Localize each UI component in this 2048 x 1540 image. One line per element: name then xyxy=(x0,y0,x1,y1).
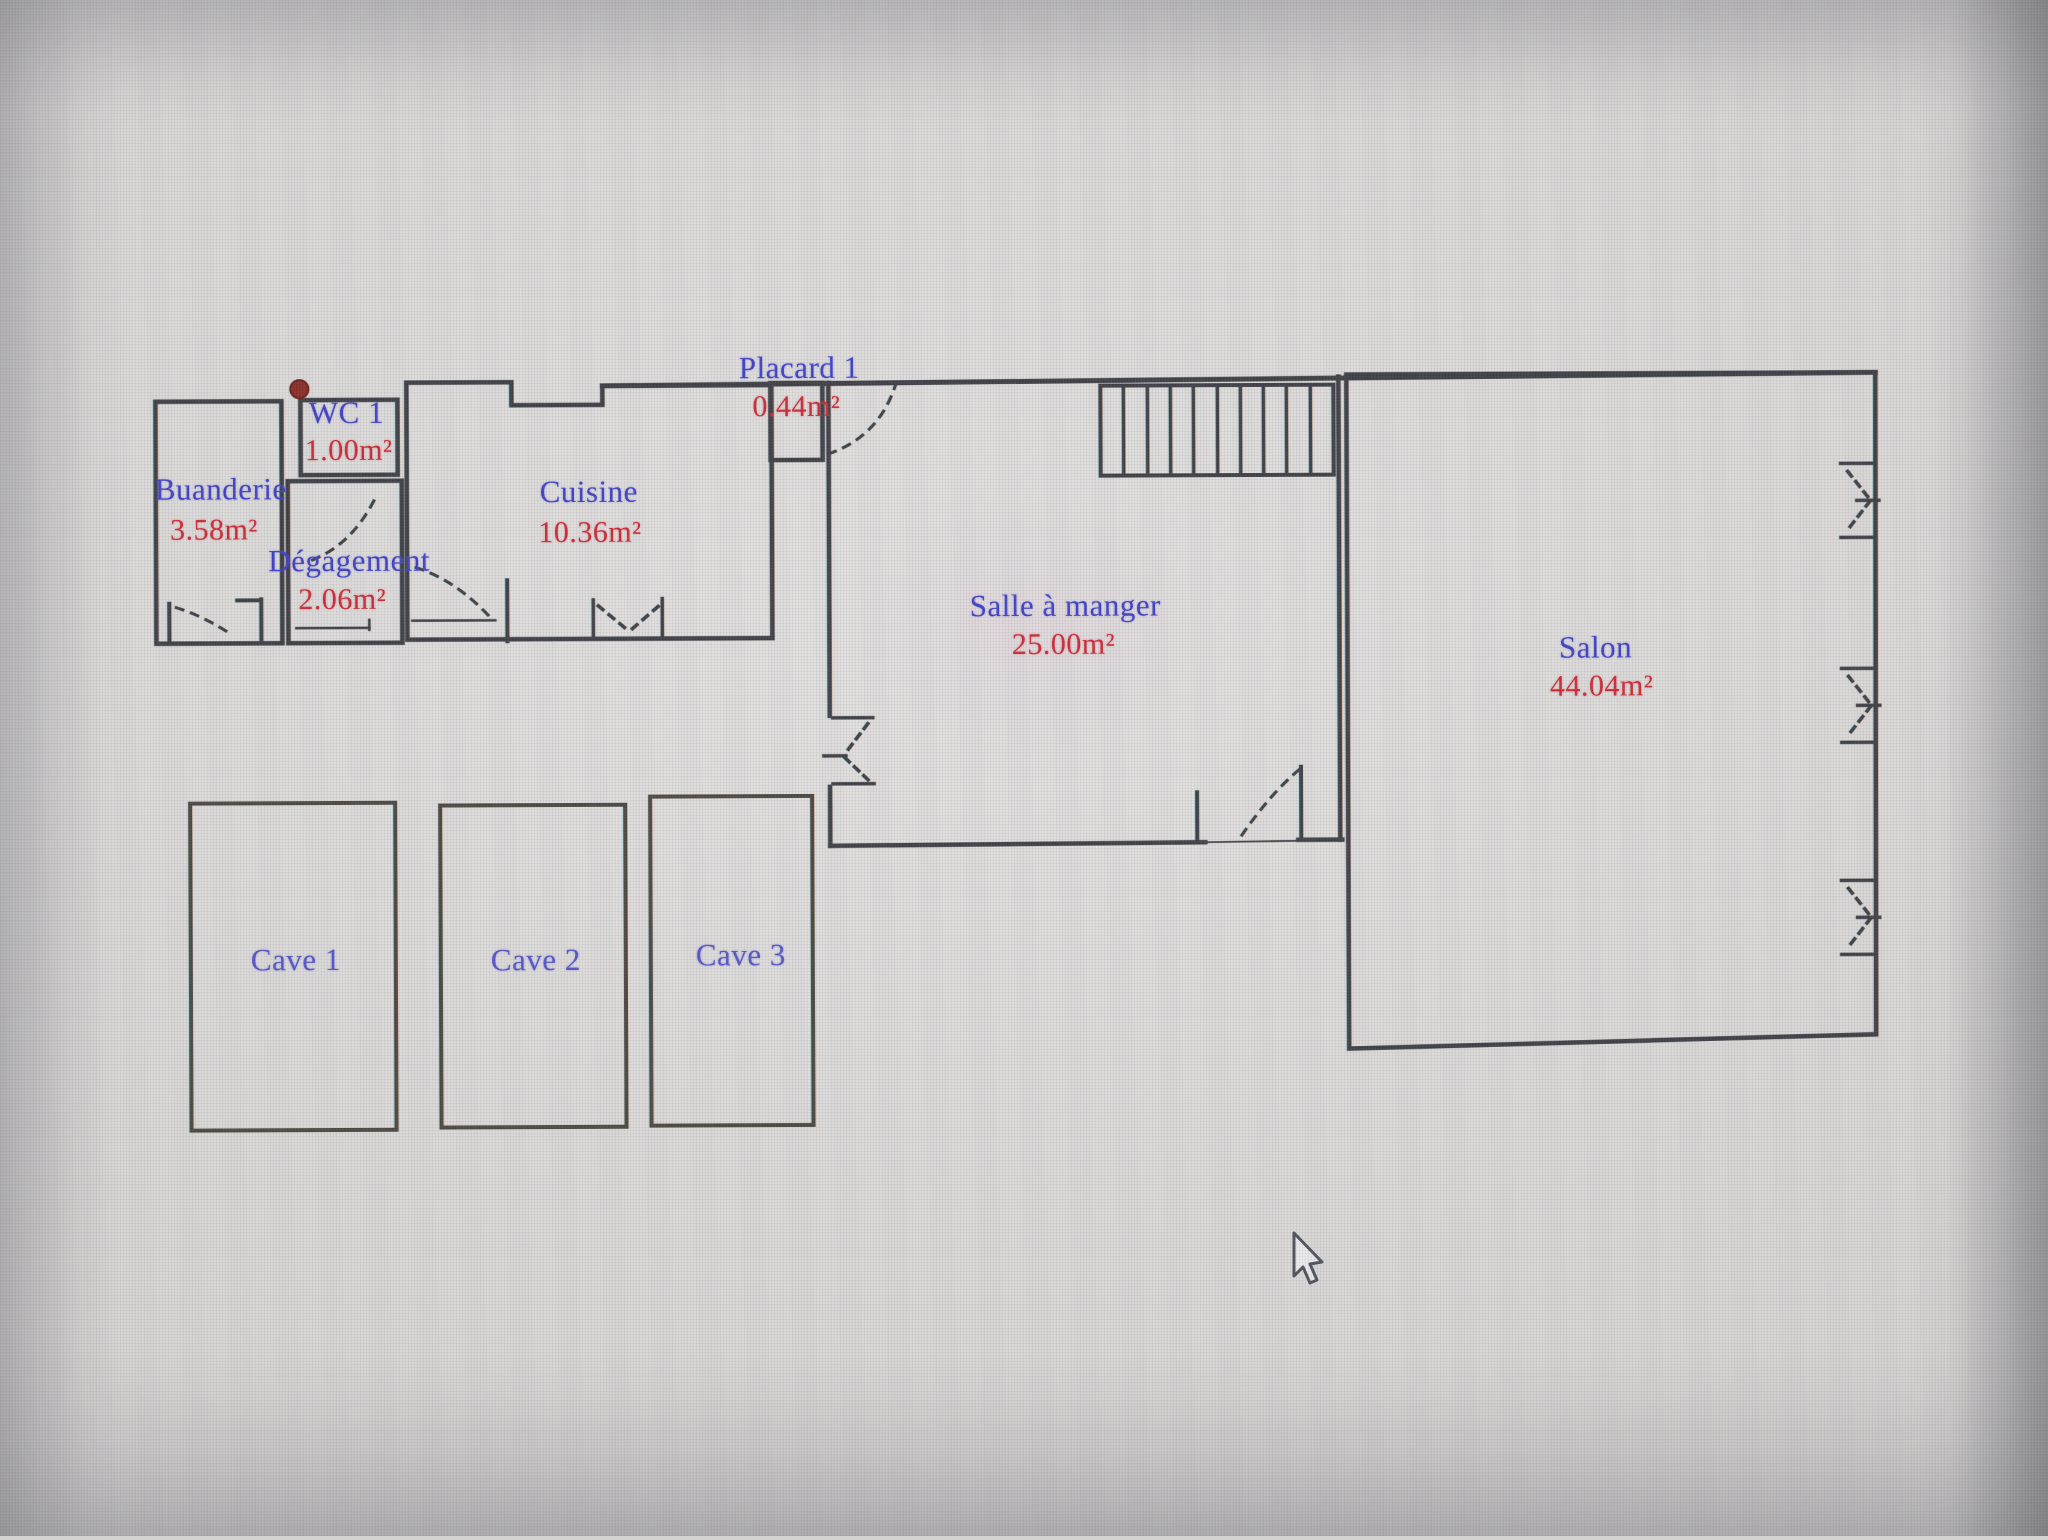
room-label-cave2: Cave 2 xyxy=(491,942,581,978)
room-label-cave1: Cave 1 xyxy=(251,942,341,978)
window-cuisine-double xyxy=(593,599,662,639)
room-area-buanderie: 3.58m² xyxy=(170,513,258,547)
room-label-buanderie: Buanderie xyxy=(155,471,287,508)
room-area-placard1: 0.44m² xyxy=(752,390,840,424)
room-label-placard1: Placard 1 xyxy=(739,350,860,387)
door-buanderie xyxy=(169,599,261,641)
room-label-salon: Salon xyxy=(1559,629,1632,665)
room-cuisine[interactable] xyxy=(406,381,772,640)
room-label-wc1: WC 1 xyxy=(309,395,384,431)
room-label-cave3: Cave 3 xyxy=(696,937,786,973)
room-label-degagement: Dégagement xyxy=(268,543,430,580)
room-area-salle-a-manger: 25.00m² xyxy=(1012,628,1115,662)
room-area-degagement: 2.06m² xyxy=(298,583,386,617)
room-salon[interactable] xyxy=(1346,372,1878,1048)
room-area-cuisine: 10.36m² xyxy=(538,516,641,550)
window-salle-left xyxy=(824,718,874,784)
floor-plan-canvas[interactable]: Buanderie 3.58m² WC 1 1.00m² Dégagement … xyxy=(0,0,2048,1540)
room-area-salon: 44.04m² xyxy=(1550,669,1653,703)
door-salle-bottom xyxy=(1197,767,1301,842)
red-vertex-dot[interactable] xyxy=(290,380,308,398)
stairs-symbol[interactable] xyxy=(1100,385,1333,476)
room-label-cuisine: Cuisine xyxy=(540,474,638,510)
room-label-salle-a-manger: Salle à manger xyxy=(970,587,1161,624)
floor-plan-drawing xyxy=(0,0,2048,1540)
room-area-wc1: 1.00m² xyxy=(305,434,393,468)
